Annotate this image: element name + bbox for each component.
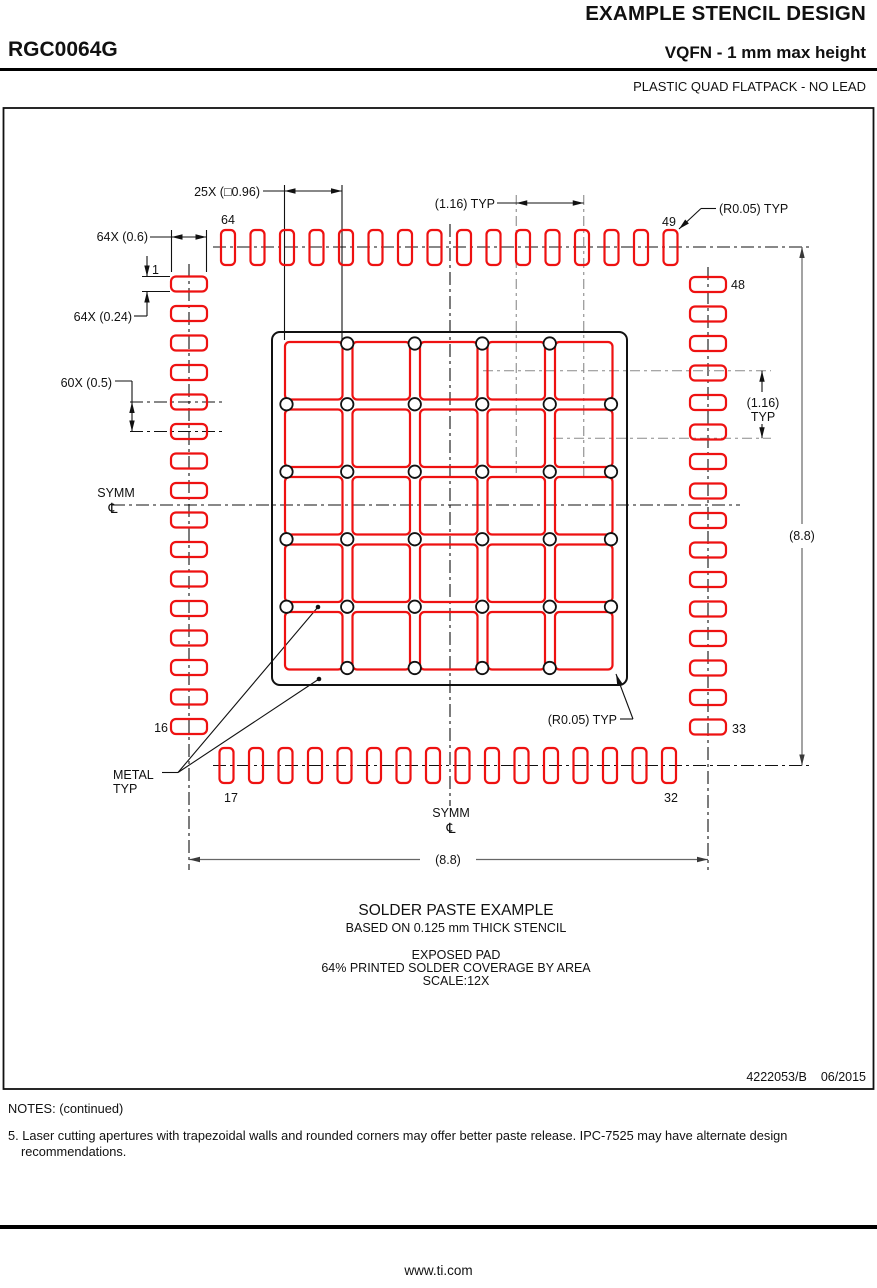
epad-aperture [353, 410, 411, 468]
arrowhead [516, 200, 527, 205]
arrowhead [144, 292, 149, 303]
epad-aperture [555, 545, 613, 603]
via-circle [544, 337, 556, 349]
epad-aperture [285, 545, 343, 603]
via-circle [341, 662, 353, 674]
via-circle [341, 466, 353, 478]
arrowhead [759, 371, 764, 382]
via-circle [341, 533, 353, 545]
symm-bottom-label: SYMM [432, 806, 470, 820]
via-circle [605, 601, 617, 613]
via-circle [605, 466, 617, 478]
ti-website-link: www.ti.com [0, 1263, 877, 1278]
pin-49-label: 49 [662, 215, 676, 229]
epad-aperture [420, 342, 478, 400]
dim-pitch-right-label-2: TYP [751, 410, 775, 424]
radius-typ-top-label: (R0.05) TYP [719, 202, 788, 216]
arrowhead [189, 857, 200, 862]
caption-title: SOLDER PASTE EXAMPLE [56, 902, 856, 920]
caption-exposed-pad: EXPOSED PAD [56, 948, 856, 962]
footer-bar [0, 1225, 877, 1229]
via-circle [409, 601, 421, 613]
via-circle [605, 533, 617, 545]
radius-typ-bottom-label: (R0.05) TYP [548, 713, 617, 727]
arrowhead [172, 234, 183, 239]
dim-width-label: (8.8) [435, 853, 461, 867]
centerline-symbol-left: ℄ [108, 500, 118, 516]
via-circle [341, 601, 353, 613]
via-circle [280, 398, 292, 410]
via-circle [476, 466, 488, 478]
via-circle [476, 662, 488, 674]
dim-pitch-top-label: (1.16) TYP [435, 197, 495, 211]
via-circle [280, 601, 292, 613]
epad-aperture [353, 612, 411, 670]
arrowhead [697, 857, 708, 862]
pin-33-label: 33 [732, 722, 746, 736]
epad-aperture [488, 477, 546, 535]
arrowhead [799, 247, 804, 258]
caption-scale: SCALE:12X [56, 974, 856, 988]
via-circle [409, 398, 421, 410]
arrowhead [129, 421, 134, 432]
pin-48-label: 48 [731, 278, 745, 292]
arrowhead [573, 200, 584, 205]
metal-label-2: TYP [113, 782, 137, 796]
pin-64-label: 64 [221, 213, 235, 227]
notes-heading: NOTES: (continued) [8, 1101, 123, 1116]
epad-aperture [353, 342, 411, 400]
leader-dot [316, 605, 321, 610]
caption-coverage: 64% PRINTED SOLDER COVERAGE BY AREA [56, 961, 856, 975]
arrowhead [759, 427, 764, 438]
document-date: 06/2015 [821, 1070, 866, 1084]
document-number: 4222053/B [746, 1070, 806, 1084]
centerline-symbol-bottom: ℄ [446, 820, 456, 836]
stencil-drawing: 25X (□0.96) 64 (1.16) TYP 49 (R0.05) TYP… [0, 0, 877, 1288]
drawing-border [4, 108, 874, 1089]
via-circle [476, 398, 488, 410]
epad-aperture [353, 545, 411, 603]
epad-aperture [488, 410, 546, 468]
dim-pad-pitch-label: 60X (0.5) [61, 376, 112, 390]
via-circle [409, 337, 421, 349]
caption-stencil-thickness: BASED ON 0.125 mm THICK STENCIL [56, 921, 856, 935]
epad-aperture [488, 612, 546, 670]
via-circle [341, 398, 353, 410]
via-circle [544, 398, 556, 410]
arrowhead [129, 402, 134, 413]
epad-aperture [285, 477, 343, 535]
pin-17-label: 17 [224, 791, 238, 805]
via-circle [341, 337, 353, 349]
dim-pad-height-label: 64X (0.24) [74, 310, 132, 324]
via-circle [476, 601, 488, 613]
epad-aperture [488, 545, 546, 603]
via-circle [476, 533, 488, 545]
via-circle [476, 337, 488, 349]
epad-aperture [285, 342, 343, 400]
arrowhead [285, 188, 296, 193]
arrowhead [331, 188, 342, 193]
pin-1-label: 1 [152, 263, 159, 277]
arrowhead [799, 755, 804, 766]
epad-aperture [285, 612, 343, 670]
via-circle [544, 601, 556, 613]
arrowhead [616, 674, 622, 685]
leader-dot [317, 677, 322, 682]
via-circle [605, 398, 617, 410]
dim-pad-width-label: 64X (0.6) [97, 230, 148, 244]
dim-pitch-right-label-1: (1.16) [747, 396, 780, 410]
document-number-line: 4222053/B06/2015 [746, 1070, 866, 1084]
pin-32-label: 32 [664, 791, 678, 805]
arrowhead [196, 234, 207, 239]
dim-height-label: (8.8) [789, 529, 815, 543]
epad-aperture [555, 477, 613, 535]
via-circle [280, 533, 292, 545]
metal-label-1: METAL [113, 768, 154, 782]
via-circle [544, 533, 556, 545]
epad-aperture [420, 545, 478, 603]
epad-aperture [555, 612, 613, 670]
arrowhead [144, 266, 149, 277]
epad-aperture [353, 477, 411, 535]
via-circle [409, 466, 421, 478]
via-circle [409, 662, 421, 674]
via-circle [544, 466, 556, 478]
pin-16-label: 16 [154, 721, 168, 735]
symm-left-label: SYMM [97, 486, 135, 500]
epad-aperture [420, 477, 478, 535]
via-circle [280, 466, 292, 478]
generated-geometry [4, 108, 874, 1089]
dim-aperture-label: 25X (□0.96) [194, 185, 260, 199]
note-5: 5. Laser cutting apertures with trapezoi… [8, 1128, 866, 1160]
via-circle [544, 662, 556, 674]
epad-aperture [285, 410, 343, 468]
epad-aperture [420, 410, 478, 468]
via-circle [409, 533, 421, 545]
epad-aperture [420, 612, 478, 670]
